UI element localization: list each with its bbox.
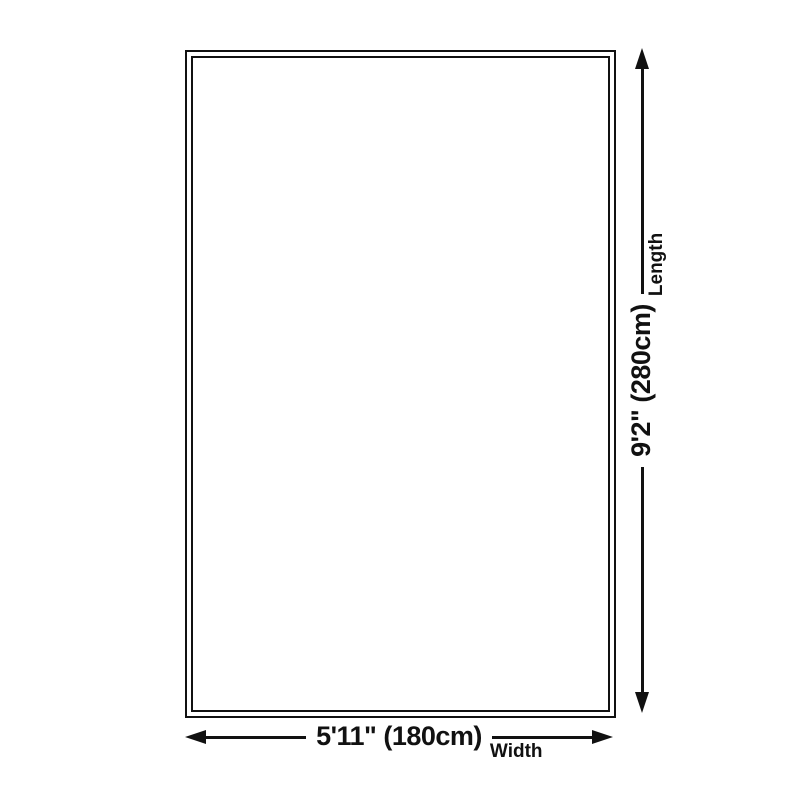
arrow-down-icon xyxy=(635,692,649,713)
length-dimension: 9'2" (280cm) Length xyxy=(620,48,664,713)
width-dimension-line-left xyxy=(206,736,306,739)
width-caption: Width xyxy=(490,742,543,761)
width-dimension-line-right xyxy=(492,736,592,739)
length-dimension-label: 9'2" (280cm) Length xyxy=(626,304,657,457)
width-dimension-label: 5'11" (180cm) Width xyxy=(316,721,482,752)
arrow-up-icon xyxy=(635,48,649,69)
rug-size-diagram: 5'11" (180cm) Width 9'2" (280cm) Length xyxy=(0,0,800,800)
width-dimension: 5'11" (180cm) Width xyxy=(185,715,613,759)
width-value: 5'11" (180cm) xyxy=(316,721,482,751)
length-value: 9'2" (280cm) xyxy=(626,304,656,457)
rug-outline xyxy=(185,50,616,718)
length-dimension-line-bottom xyxy=(641,467,644,692)
length-dimension-line-top xyxy=(641,69,644,294)
arrow-left-icon xyxy=(185,730,206,744)
rug-inner-outline xyxy=(191,56,610,712)
length-caption: Length xyxy=(647,233,666,296)
arrow-right-icon xyxy=(592,730,613,744)
